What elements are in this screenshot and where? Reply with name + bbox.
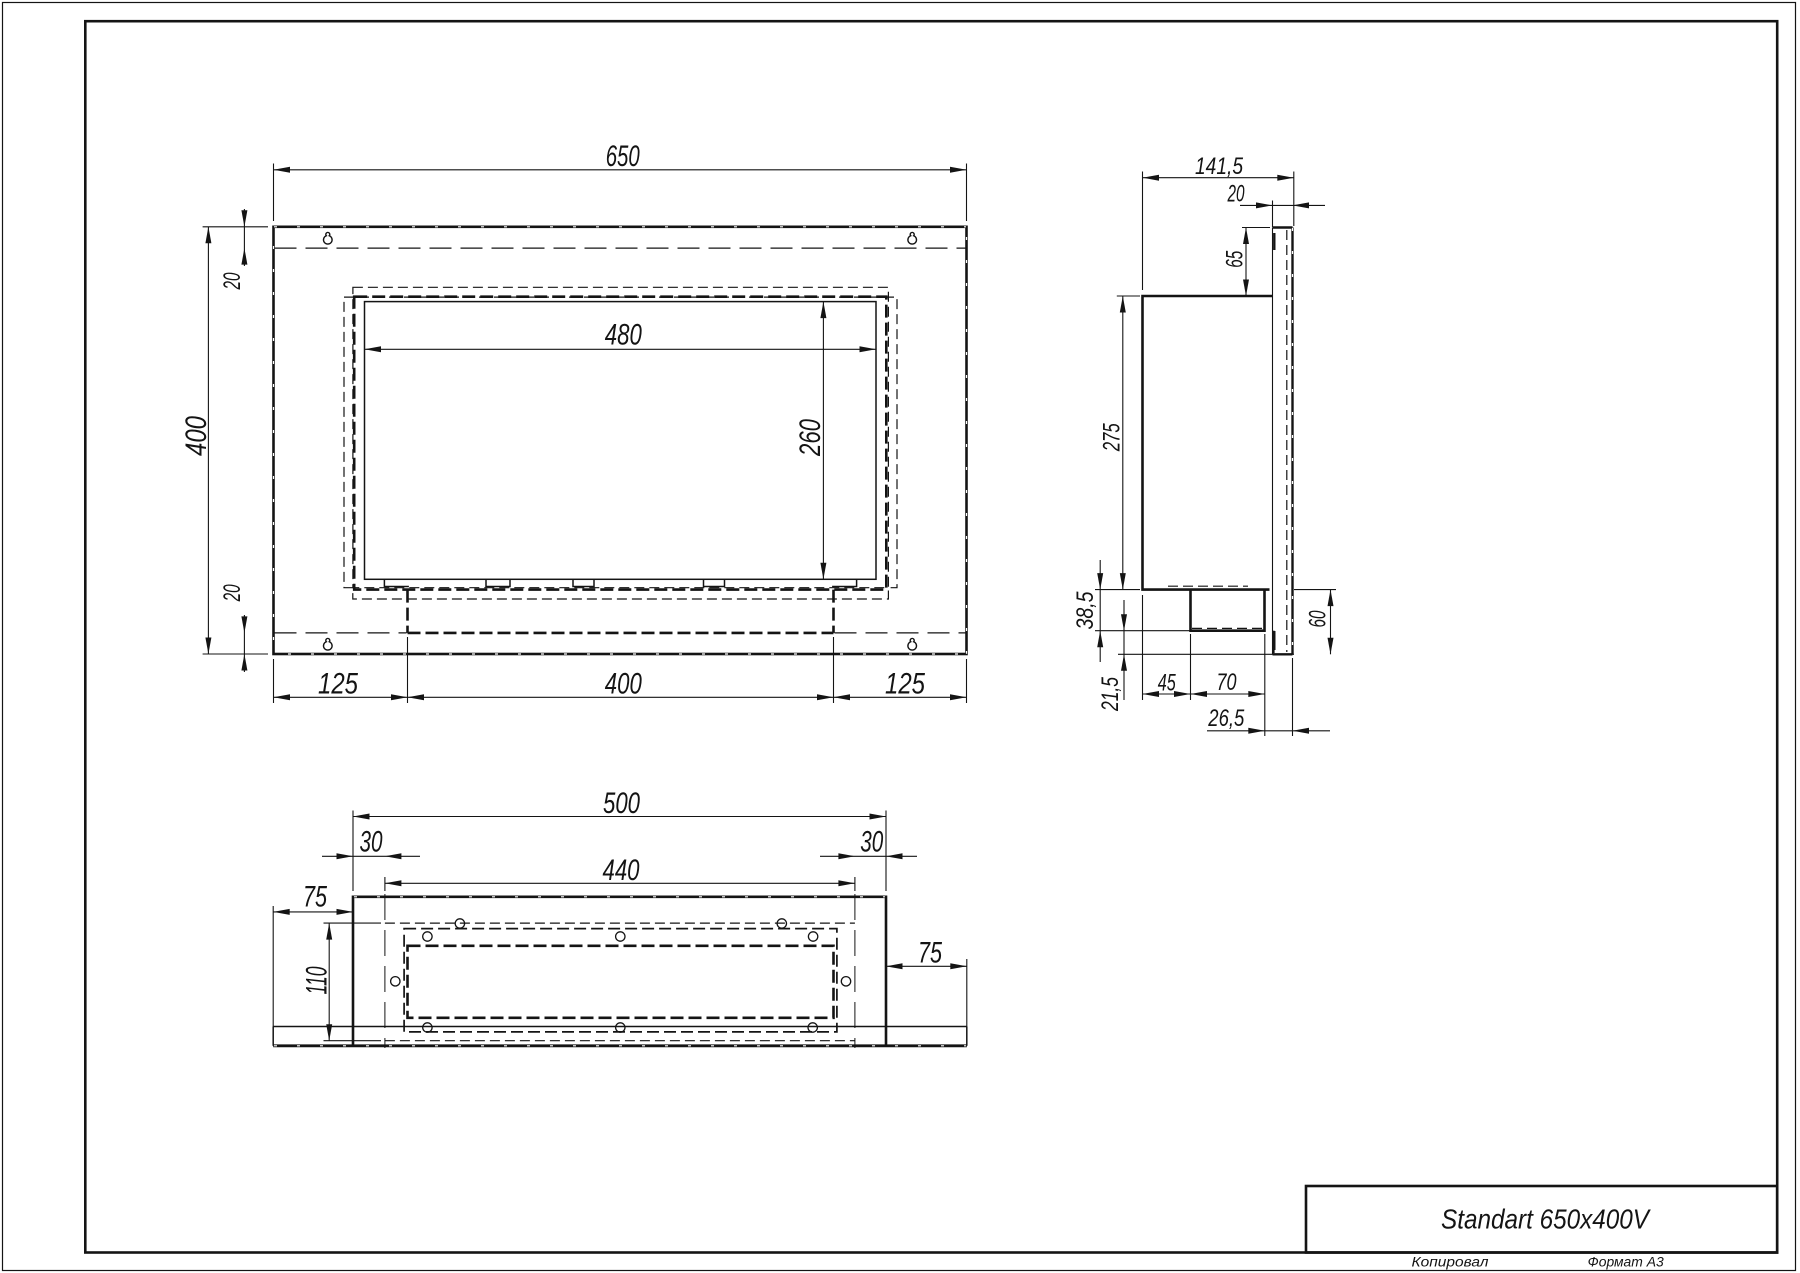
svg-text:500: 500 [603,787,640,820]
svg-text:400: 400 [180,416,213,456]
svg-text:65: 65 [1222,250,1249,267]
svg-text:110: 110 [301,966,334,994]
svg-text:75: 75 [918,936,942,969]
svg-text:20: 20 [219,584,246,602]
svg-text:480: 480 [605,318,642,351]
svg-text:Формат А3: Формат А3 [1588,1254,1664,1269]
svg-text:70: 70 [1217,669,1237,696]
svg-text:400: 400 [605,667,642,700]
svg-text:26,5: 26,5 [1208,705,1245,732]
svg-text:60: 60 [1305,610,1332,627]
svg-text:45: 45 [1158,670,1176,697]
svg-text:125: 125 [318,667,358,700]
svg-text:141,5: 141,5 [1195,153,1244,180]
svg-text:440: 440 [603,854,640,887]
svg-text:30: 30 [360,826,383,859]
svg-text:125: 125 [885,667,925,700]
svg-text:20: 20 [1227,181,1245,208]
svg-text:Standart 650x400V: Standart 650x400V [1441,1204,1651,1235]
svg-text:75: 75 [303,881,327,914]
svg-text:260: 260 [794,419,827,457]
svg-text:21,5: 21,5 [1097,677,1124,712]
svg-text:30: 30 [860,826,883,859]
svg-text:20: 20 [219,272,246,290]
svg-text:Копировал: Копировал [1412,1254,1489,1269]
svg-text:275: 275 [1098,423,1125,452]
svg-text:38,5: 38,5 [1072,591,1099,630]
svg-text:650: 650 [606,140,640,173]
